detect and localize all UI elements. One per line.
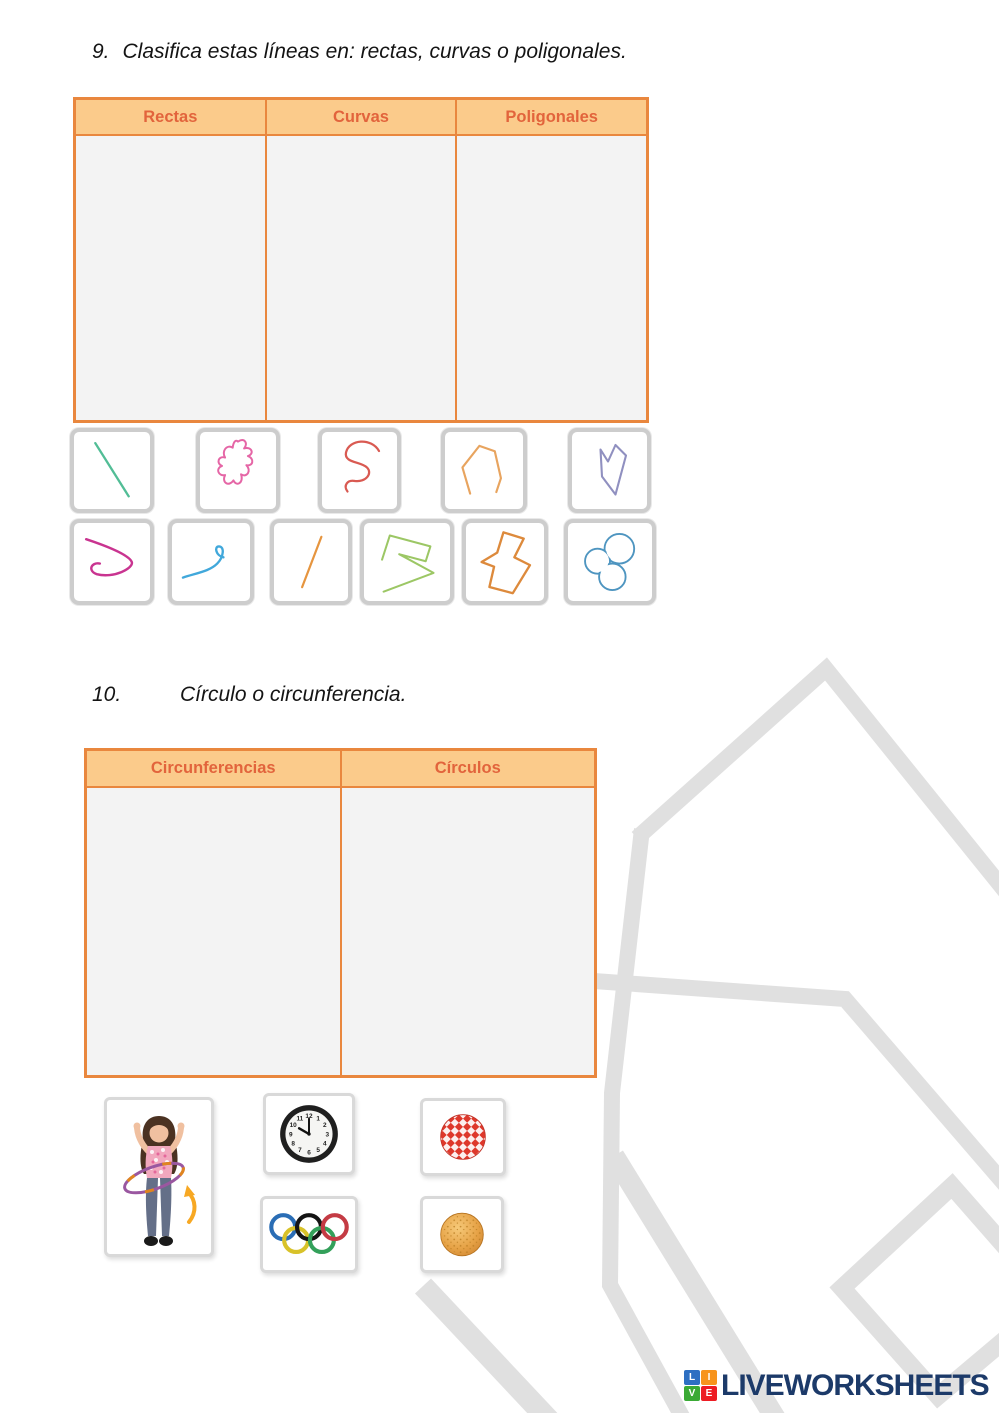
liveworksheets-logo: L I V E LIVEWORKSHEETS: [684, 1370, 989, 1401]
drop-zone-circulos[interactable]: [341, 787, 596, 1076]
clock-number: 3: [325, 1131, 329, 1138]
clock-number: 2: [323, 1122, 327, 1129]
logo-square-v: V: [684, 1386, 700, 1401]
clock-number: 4: [323, 1140, 327, 1147]
loop-curve-magenta-icon: [74, 523, 150, 601]
draggable-shape-closed-polygon-slate[interactable]: [568, 428, 651, 513]
draggable-shape-curvy-blob-pink[interactable]: [196, 428, 280, 513]
draggable-shape-loop-curve-magenta[interactable]: [70, 519, 154, 605]
draggable-image-olympic-rings[interactable]: [260, 1196, 358, 1273]
draggable-shape-zigzag-polyline-green[interactable]: [360, 519, 454, 605]
clock-number: 9: [289, 1131, 293, 1138]
straight-line-green-icon: [74, 432, 150, 509]
wall-clock-illustration: 12 1 2 3 4 5 6 7 8 9 10 11: [266, 1096, 352, 1172]
girl-with-hula-hoop-illustration: [107, 1100, 211, 1254]
hook-curve-blue-icon: [172, 523, 250, 601]
column-header-rectas: Rectas: [75, 99, 266, 135]
straight-line-orange-icon: [274, 523, 348, 601]
exercise-10-title: Círculo o circunferencia.: [180, 683, 406, 706]
draggable-image-girl-with-hula-hoop[interactable]: [104, 1097, 214, 1257]
round-cookie-illustration: [423, 1199, 501, 1270]
exercise-9-number: 9.: [92, 40, 110, 64]
drop-zone-curvas[interactable]: [266, 135, 457, 421]
draggable-shape-s-curve-red[interactable]: [318, 428, 401, 513]
clock-number: 8: [291, 1140, 295, 1147]
logo-square-e: E: [701, 1386, 717, 1401]
liveworksheets-wordmark: LIVEWORKSHEETS: [721, 1371, 989, 1401]
s-curve-red-icon: [322, 432, 397, 509]
open-polyline-orange-icon: [445, 432, 523, 509]
classification-table-circles: Circunferencias Círculos: [84, 748, 597, 1078]
logo-square-l: L: [684, 1370, 700, 1385]
zigzag-polyline-green-icon: [364, 523, 450, 601]
classification-table-lines: Rectas Curvas Poligonales: [73, 97, 649, 423]
draggable-image-round-cookie[interactable]: [420, 1196, 504, 1273]
exercise-9-title: Clasifica estas líneas en: rectas, curva…: [123, 40, 627, 63]
cloud-curve-blue-icon: [568, 523, 652, 601]
olympic-rings-illustration: [263, 1199, 355, 1270]
draggable-shape-straight-line-orange[interactable]: [270, 519, 352, 605]
clock-number: 10: [290, 1122, 298, 1129]
closed-polygon-orange-icon: [466, 523, 544, 601]
clock-number: 11: [296, 1115, 303, 1122]
drop-zone-rectas[interactable]: [75, 135, 266, 421]
drop-zone-poligonales[interactable]: [456, 135, 647, 421]
column-header-circulos: Círculos: [341, 750, 596, 787]
worksheet-page: 9.Clasifica estas líneas en: rectas, cur…: [0, 0, 999, 1413]
closed-polygon-slate-icon: [572, 432, 647, 509]
column-header-curvas: Curvas: [266, 99, 457, 135]
exercise-10-number: 10.: [92, 683, 180, 707]
draggable-shape-open-polyline-orange[interactable]: [441, 428, 527, 513]
liveworksheets-logo-icon: L I V E: [684, 1370, 717, 1401]
logo-square-i: I: [701, 1370, 717, 1385]
draggable-image-red-gingham-circle[interactable]: [420, 1098, 506, 1176]
column-header-poligonales: Poligonales: [456, 99, 647, 135]
clock-number: 5: [316, 1147, 320, 1154]
exercise-9-title-row: 9.Clasifica estas líneas en: rectas, cur…: [92, 40, 627, 64]
exercise-10-title-row: 10.Círculo o circunferencia.: [92, 683, 406, 707]
worksheet-content: 9.Clasifica estas líneas en: rectas, cur…: [0, 0, 999, 1413]
column-header-circunferencias: Circunferencias: [86, 750, 341, 787]
curvy-blob-pink-icon: [200, 432, 276, 509]
draggable-shape-hook-curve-blue[interactable]: [168, 519, 254, 605]
draggable-shape-straight-line-green[interactable]: [70, 428, 154, 513]
clock-number: 1: [316, 1115, 320, 1122]
clock-number: 7: [298, 1147, 302, 1154]
draggable-shape-cloud-curve-blue[interactable]: [564, 519, 656, 605]
clock-number: 6: [307, 1150, 311, 1157]
draggable-image-wall-clock[interactable]: 12 1 2 3 4 5 6 7 8 9 10 11: [263, 1093, 355, 1175]
drop-zone-circunferencias[interactable]: [86, 787, 341, 1076]
draggable-shape-closed-polygon-orange[interactable]: [462, 519, 548, 605]
red-gingham-circle-illustration: [423, 1101, 503, 1173]
